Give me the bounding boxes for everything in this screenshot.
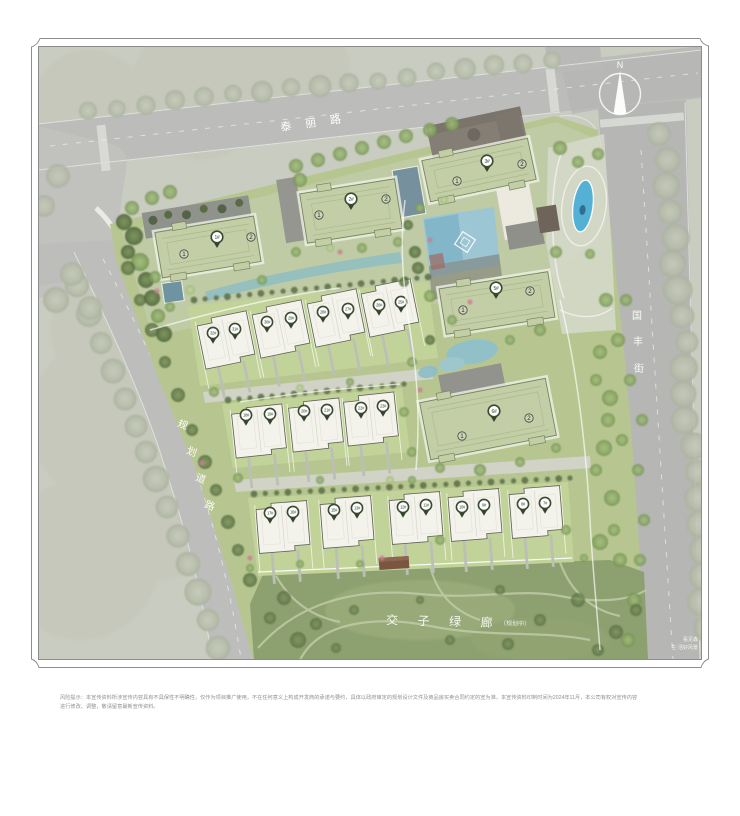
svg-text:1: 1 [455,178,459,185]
svg-text:10#: 10# [459,505,466,510]
svg-text:进行修改、调整，敬请留意最新宣传资料。: 进行修改、调整，敬请留意最新宣传资料。 [60,702,159,710]
svg-text:21#: 21# [324,408,331,413]
svg-text:15#: 15# [331,508,338,513]
svg-text:N: N [617,60,624,70]
svg-text:16#: 16# [290,510,297,515]
svg-text:风险提示：本宣传资料所涉宣传内容具有不具保性不明确性，仅作为: 风险提示：本宣传资料所涉宣传内容具有不具保性不明确性，仅作为项目推广使用，不在任… [60,693,637,701]
svg-text:2#: 2# [349,197,354,203]
svg-text:17#: 17# [267,511,274,516]
svg-text:31#: 31# [232,327,239,332]
svg-text:2: 2 [249,234,253,241]
svg-text:12#: 12# [400,505,407,510]
svg-text:2: 2 [384,196,388,203]
svg-text:生·活好风景: 生·活好风景 [671,644,698,651]
svg-text:看见森: 看见森 [683,636,698,643]
svg-text:22#: 22# [358,406,365,411]
svg-text:13#: 13# [354,506,361,511]
svg-text:32#: 32# [210,331,217,336]
svg-text:2: 2 [520,161,524,168]
svg-text:街: 街 [634,362,644,375]
svg-text:国: 国 [632,310,642,322]
svg-text:29#: 29# [288,316,295,321]
svg-text:5#: 5# [494,286,499,292]
svg-text:1: 1 [461,307,465,314]
svg-text:23#: 23# [380,404,387,409]
svg-text:25#: 25# [398,300,405,305]
svg-text:2: 2 [528,288,532,295]
svg-text:20#: 20# [301,409,308,414]
svg-text:1#: 1# [215,235,220,241]
svg-text:26#: 26# [376,303,383,308]
svg-text:1: 1 [182,251,186,258]
svg-text:2: 2 [527,415,531,422]
svg-text:19#: 19# [267,412,274,417]
svg-text:30#: 30# [264,320,271,325]
svg-text:18#: 18# [243,413,250,418]
svg-text:6#: 6# [492,409,497,415]
svg-text:11#: 11# [423,503,430,508]
svg-text:28#: 28# [320,310,327,315]
svg-text:丰: 丰 [633,335,643,348]
svg-text:1: 1 [317,212,321,219]
svg-text:3#: 3# [485,159,490,165]
svg-text:1: 1 [460,433,464,440]
svg-text:27#: 27# [345,307,352,312]
